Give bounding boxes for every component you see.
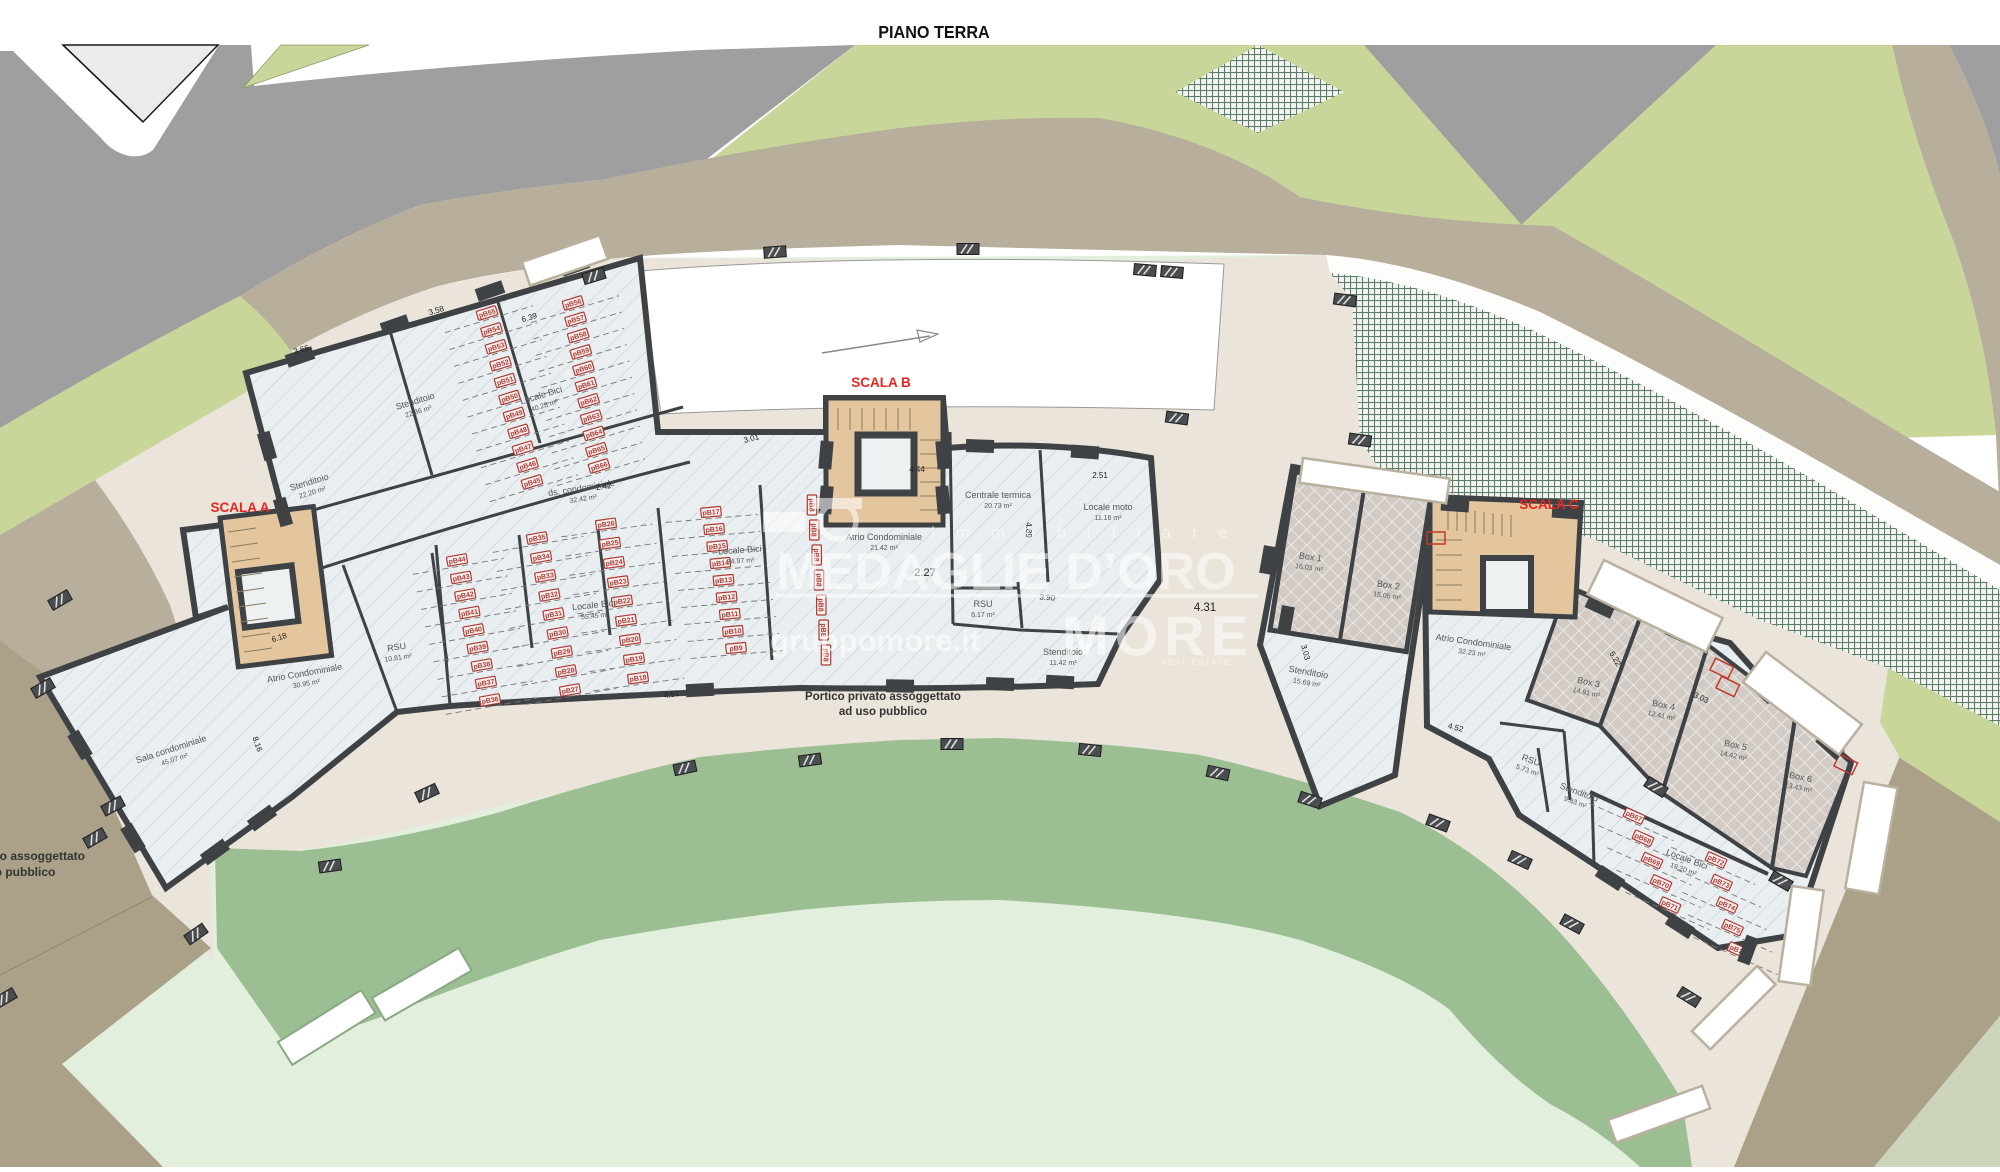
svg-text:pB11: pB11 [721, 611, 738, 619]
svg-text:2.51: 2.51 [1092, 471, 1108, 480]
svg-text:immobiliare: immobiliare [931, 523, 1249, 542]
svg-text:REAL ESTATE: REAL ESTATE [1161, 658, 1230, 667]
svg-text:ad uso pubblico: ad uso pubblico [839, 706, 927, 718]
svg-text:pB13: pB13 [715, 577, 733, 585]
svg-text:20.73 m²: 20.73 m² [984, 503, 1012, 510]
svg-text:ato assoggettato: ato assoggettato [0, 849, 85, 863]
svg-text:Portico privato assoggettato: Portico privato assoggettato [805, 691, 961, 703]
svg-text:6.17 m²: 6.17 m² [971, 612, 995, 619]
svg-text:o pubblico: o pubblico [0, 865, 55, 879]
svg-text:Atrio Condominiale: Atrio Condominiale [846, 532, 922, 542]
svg-text:Centrale termica: Centrale termica [965, 490, 1031, 500]
svg-text:SCALA B: SCALA B [851, 375, 911, 390]
svg-text:pB17: pB17 [702, 509, 720, 517]
svg-text:gruppomore.it: gruppomore.it [770, 623, 980, 658]
svg-text:Locale moto: Locale moto [1083, 502, 1132, 512]
svg-text:MEDAGLIE D’ORO: MEDAGLIE D’ORO [776, 543, 1235, 601]
svg-text:pB9: pB9 [729, 645, 743, 653]
svg-text:PIANO TERRA: PIANO TERRA [878, 22, 990, 42]
svg-text:11.16 m²: 11.16 m² [1094, 515, 1122, 522]
svg-text:SCALA A: SCALA A [211, 500, 270, 515]
svg-text:pB12: pB12 [718, 594, 736, 602]
svg-text:pB16: pB16 [705, 526, 723, 534]
svg-text:SCALA C: SCALA C [1519, 497, 1579, 512]
svg-text:4.44: 4.44 [909, 465, 925, 474]
svg-text:pB8: pB8 [810, 523, 817, 536]
svg-text:pB10: pB10 [724, 628, 742, 636]
